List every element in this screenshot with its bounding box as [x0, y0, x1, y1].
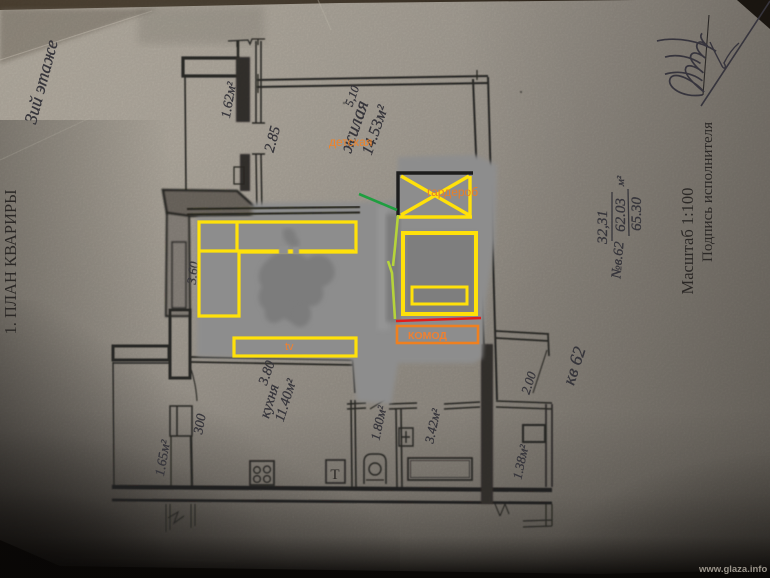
- svg-text:детская: детская: [329, 135, 372, 149]
- svg-text:tv: tv: [285, 341, 294, 353]
- svg-text:гардероб: гардероб: [427, 185, 478, 199]
- svg-text:КОМОД: КОМОД: [408, 330, 447, 342]
- svg-text:www.glaza.info: www.glaza.info: [698, 564, 767, 575]
